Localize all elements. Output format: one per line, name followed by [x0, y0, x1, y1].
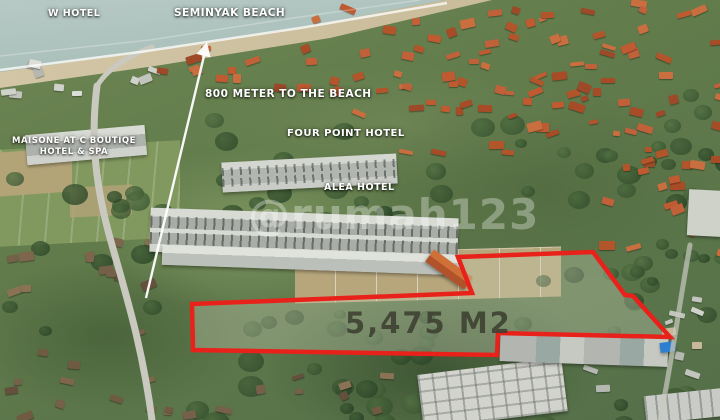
- watermark: @rumah123: [248, 190, 539, 239]
- plot-area-label: 5,475 M2: [345, 306, 512, 340]
- beach-arrow-line: [146, 56, 204, 298]
- label-four-point-hotel: FOUR POINT HOTEL: [287, 128, 405, 139]
- label-distance-to-beach: 800 METER TO THE BEACH: [205, 88, 372, 100]
- label-seminyak-beach: SEMINYAK BEACH: [174, 7, 285, 19]
- label-alea-hotel: ALEA HOTEL: [324, 182, 395, 193]
- aerial-listing-photo: @rumah123 5,475 M2 W HOTEL SEMINYAK BEAC…: [0, 0, 720, 420]
- label-maisone-hotel: MAISONE AT C BOUTIQE HOTEL & SPA: [12, 136, 136, 157]
- label-maisone-line2: HOTEL & SPA: [12, 147, 136, 158]
- label-w-hotel: W HOTEL: [48, 8, 100, 19]
- label-maisone-line1: MAISONE AT C BOUTIQE: [12, 136, 136, 147]
